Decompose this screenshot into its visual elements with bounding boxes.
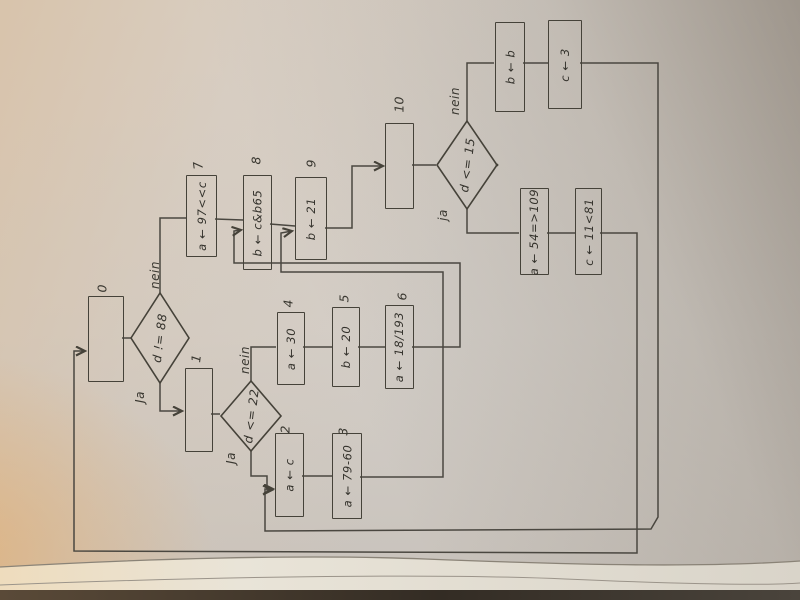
flow-line (467, 63, 494, 121)
branch-d88-ja: Ja (133, 391, 147, 403)
flow-line (160, 383, 182, 411)
step-number-4: 4 (280, 300, 295, 308)
process-box-7: a ← 97<<c (186, 175, 217, 257)
box-8-text: b ← c&b65 (251, 189, 265, 256)
flow-line (325, 166, 383, 228)
step-number-2: 2 (277, 426, 292, 434)
box-9-text: b ← 21 (304, 197, 318, 239)
stray-ink-dot (496, 164, 499, 167)
branch-d22-ja: Ja (224, 452, 238, 464)
process-box-3: a ← 79-60 (332, 433, 362, 519)
branch-d15-nein: nein (448, 87, 462, 115)
flow-line (270, 224, 295, 226)
flow-line (251, 347, 276, 381)
decision-d15-label: d <= 15 (453, 125, 481, 205)
flow-line (251, 451, 272, 490)
process-box-a-54: a ← 54=>109 (520, 188, 549, 275)
flow-line (215, 219, 243, 220)
step-number-10: 10 (391, 97, 406, 113)
box-6-text: a ← 18/193 (393, 312, 407, 382)
process-box-b-b: b ← b (495, 22, 525, 112)
table-edge (0, 590, 800, 600)
box-c-11-text: c ← 11<81 (582, 198, 596, 266)
branch-d15-ja: ja (436, 209, 450, 221)
step-number-5: 5 (336, 295, 351, 303)
decision-d88-label: d != 88 (146, 296, 174, 380)
flow-line (160, 218, 186, 293)
box-a-54-text: a ← 54=>109 (528, 188, 542, 274)
box-4-text: a ← 30 (284, 327, 298, 369)
process-box-4: a ← 30 (277, 312, 305, 385)
step-number-0: 0 (94, 285, 109, 293)
box-3-text: a ← 79-60 (340, 445, 354, 508)
process-box-c-3: c ← 3 (548, 20, 582, 109)
branch-d88-nein: nein (148, 261, 162, 289)
process-box-0 (88, 296, 124, 382)
decision-d22-label: d <= 22 (237, 382, 265, 450)
process-box-1 (185, 368, 213, 452)
box-c-3-text: c ← 3 (558, 48, 572, 82)
box-b-b-text: b ← b (503, 50, 517, 85)
photo-of-hand-drawn-flowchart: a ← c a ← 79-60 a ← 30 b ← 20 a ← 18/193… (0, 0, 800, 600)
step-number-9: 9 (303, 160, 318, 168)
flow-line (467, 209, 519, 233)
step-number-1: 1 (188, 354, 204, 364)
process-box-5: b ← 20 (332, 307, 360, 387)
box-2-text: a ← c (283, 458, 297, 491)
flow-line (281, 231, 443, 477)
branch-d22-nein: nein (238, 346, 252, 374)
process-box-10 (385, 123, 414, 209)
process-box-9: b ← 21 (295, 177, 327, 260)
step-number-3: 3 (335, 428, 350, 436)
step-number-8: 8 (248, 157, 263, 165)
process-box-2: a ← c (275, 433, 304, 517)
process-box-8: b ← c&b65 (243, 175, 272, 270)
box-7-text: a ← 97<<c (195, 181, 209, 251)
process-box-6: a ← 18/193 (385, 305, 414, 389)
step-number-6: 6 (394, 293, 409, 301)
process-box-c-11: c ← 11<81 (575, 188, 602, 275)
box-5-text: b ← 20 (339, 326, 353, 368)
